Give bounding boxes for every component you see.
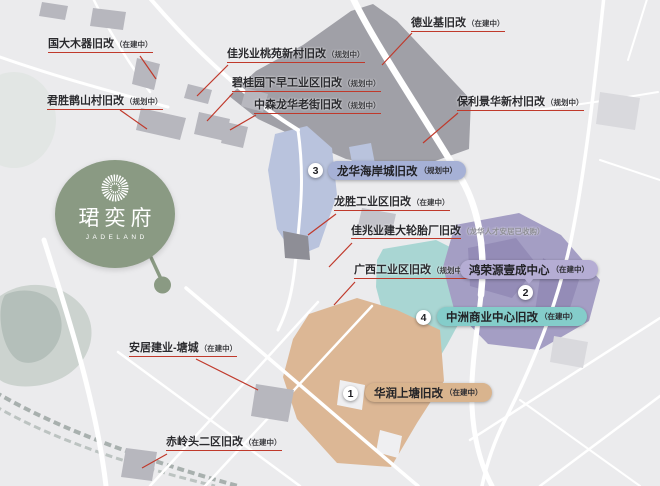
real-estate-map: 国大木器旧改（在建中） 君胜鹊山村旧改（规划中） 佳兆业桃苑新村旧改（规划中） … (0, 0, 660, 486)
project-number-badge-1: 1 (343, 386, 358, 401)
label-kaisa-jianda-tire: 佳兆业建大轮胎厂旧改（龙华人才安居已收购） (351, 225, 545, 239)
label-longsheng-industrial: 龙胜工业区旧改（在建中） (334, 196, 450, 211)
label-status: （规划中） (343, 79, 381, 88)
label-text: 碧桂园下早工业区旧改 (232, 77, 342, 89)
pill-status: （在建中） (540, 311, 578, 322)
pill-status: （在建中） (552, 264, 590, 275)
label-biguiyuan-xiazao: 碧桂园下早工业区旧改（规划中） (232, 77, 381, 92)
label-poly-jinghua: 保利景华新村旧改（规划中） (457, 96, 584, 111)
label-text: 德业基旧改 (411, 17, 466, 29)
label-text: 佳兆业桃苑新村旧改 (227, 48, 326, 60)
label-status: （龙华人才安居已收购） (462, 227, 545, 236)
project-number-badge-2: 2 (518, 285, 533, 300)
label-text: 佳兆业建大轮胎厂旧改 (351, 225, 461, 239)
label-status: （在建中） (244, 438, 282, 447)
pill-text: 华润上塘旧改 (374, 385, 443, 401)
project-number-badge-4: 4 (416, 310, 431, 325)
label-deyeji: 德业基旧改（在建中） (411, 17, 505, 32)
project-pill-hongrongyuan: 鸿荣源壹成中心（在建中） (460, 260, 598, 279)
sunburst-icon (98, 171, 132, 205)
brand-logo-balloon: 珺奕府 JADELAND (55, 160, 175, 268)
label-kaisa-taoyuan: 佳兆业桃苑新村旧改（规划中） (227, 48, 365, 63)
brand-subtitle: JADELAND (82, 234, 147, 241)
pill-text: 龙华海岸城旧改 (337, 163, 418, 179)
label-status: （规划中） (327, 50, 365, 59)
label-anju-tangcheng: 安居建业-塘城（在建中） (129, 342, 237, 357)
label-text: 保利景华新村旧改 (457, 96, 545, 108)
brand-name: 珺奕府 (74, 206, 157, 230)
label-status: （规划中） (546, 98, 584, 107)
label-guoda-wood: 国大木器旧改（在建中） (48, 38, 153, 53)
label-status: （在建中） (467, 19, 505, 28)
pill-status: （规划中） (420, 165, 458, 176)
label-status: （在建中） (412, 198, 450, 207)
project-pill-huarun-shangtang: 华润上塘旧改（在建中） (365, 383, 492, 402)
pill-status: （在建中） (445, 387, 483, 398)
label-chilingtou: 赤岭头二区旧改（在建中） (166, 436, 282, 451)
pill-text: 鸿荣源壹成中心 (469, 262, 550, 278)
label-text: 安居建业-塘城 (129, 342, 199, 354)
label-status: （在建中） (115, 40, 153, 49)
label-junsheng-queshan: 君胜鹊山村旧改（规划中） (47, 95, 163, 110)
project-pill-longhua-coast: 龙华海岸城旧改（规划中） (328, 161, 466, 180)
label-text: 赤岭头二区旧改 (166, 436, 243, 448)
label-text: 中森龙华老街旧改 (254, 99, 342, 111)
label-status: （规划中） (125, 97, 163, 106)
label-text: 君胜鹊山村旧改 (47, 95, 124, 107)
label-guangxi-industrial: 广西工业区旧改（规划中） (354, 264, 470, 279)
label-text: 国大木器旧改 (48, 38, 114, 50)
label-text: 广西工业区旧改 (354, 264, 431, 276)
label-zhongsen-laojie: 中森龙华老街旧改（规划中） (254, 99, 381, 114)
label-text: 龙胜工业区旧改 (334, 196, 411, 208)
label-status: （规划中） (343, 101, 381, 110)
project-number-badge-3: 3 (308, 163, 323, 178)
label-status: （在建中） (200, 344, 238, 353)
project-pill-zhongzhou: 中洲商业中心旧改（在建中） (437, 307, 587, 326)
pill-text: 中洲商业中心旧改 (446, 309, 538, 325)
